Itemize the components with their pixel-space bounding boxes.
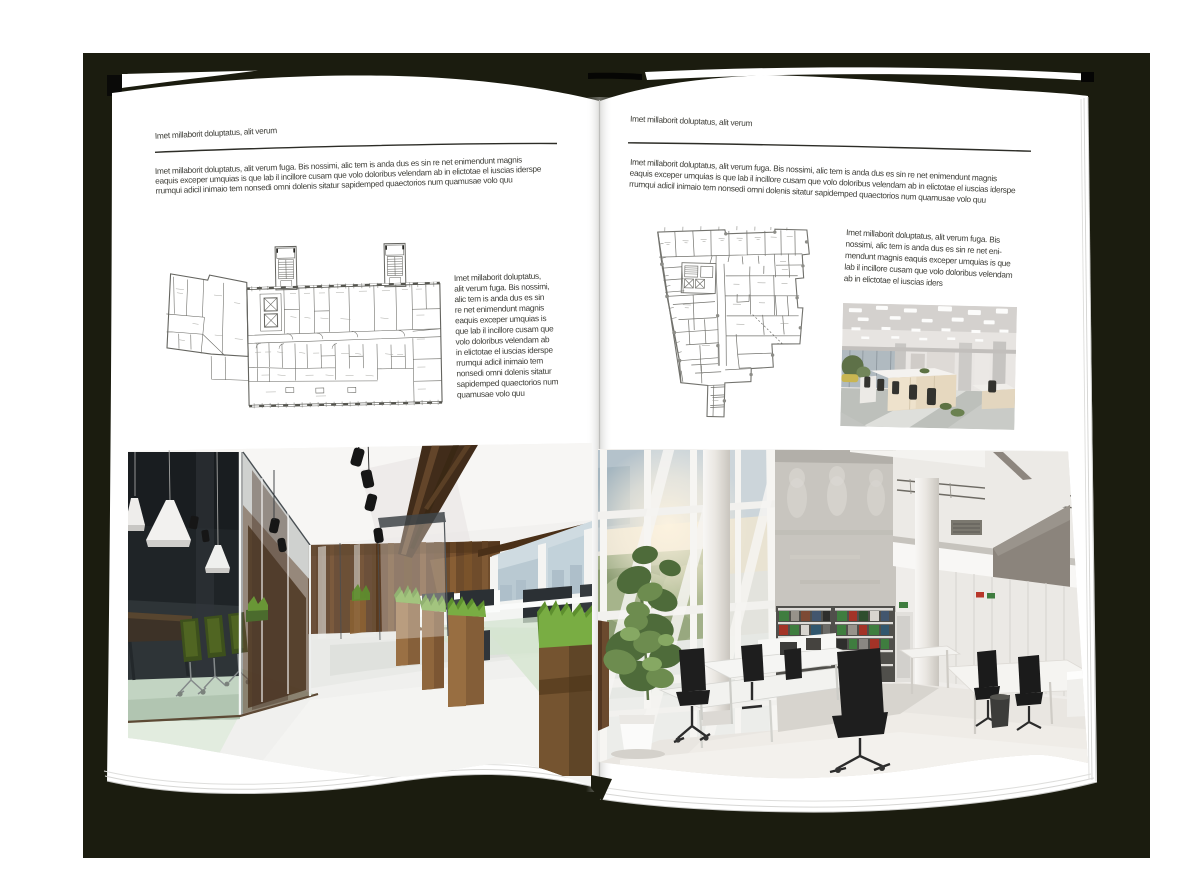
- svg-text:quamusae volo quu: quamusae volo quu: [457, 388, 526, 400]
